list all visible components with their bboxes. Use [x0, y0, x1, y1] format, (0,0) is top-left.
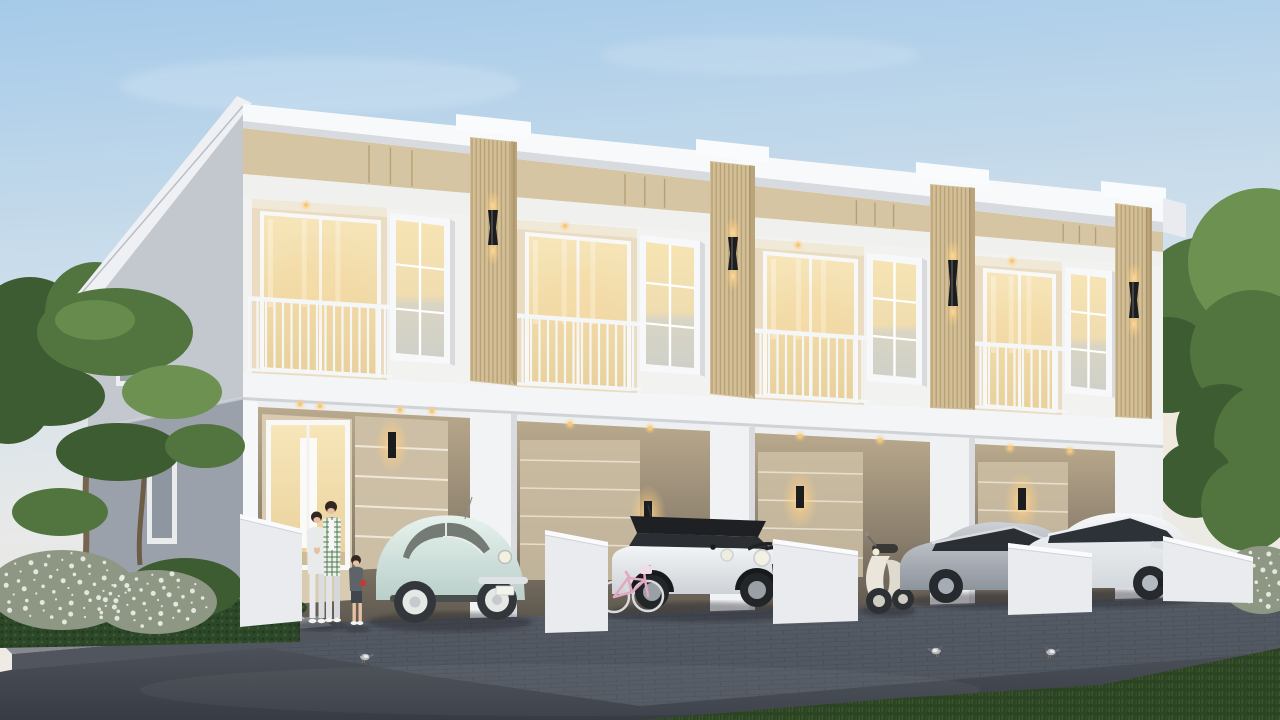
white-flower [1266, 604, 1271, 609]
white-flower [113, 598, 118, 603]
white-flower [1254, 580, 1258, 584]
unit-4-balcony [970, 256, 1067, 415]
downlight [294, 398, 306, 410]
window-frame-shadow [700, 241, 705, 377]
white-flower [181, 595, 185, 599]
white-flower [89, 573, 91, 575]
white-flower [35, 592, 37, 594]
white-flower [124, 583, 129, 588]
white-flower [161, 605, 163, 607]
white-flower [1265, 577, 1267, 579]
white-flower [13, 593, 15, 595]
father-leg [326, 576, 332, 618]
wood-slat-pillar-2 [710, 161, 755, 399]
window-frame-shadow [450, 219, 455, 366]
mini-mirror [710, 544, 716, 550]
white-flower [23, 606, 28, 611]
boy-leg [359, 603, 362, 621]
white-flower [17, 579, 21, 583]
pigeon-wing [932, 649, 937, 652]
white-flower [70, 552, 72, 554]
white-flower [139, 588, 143, 592]
white-flower [1272, 569, 1277, 574]
pigeon-head [938, 646, 942, 650]
downlight [314, 400, 326, 412]
wood-slat-pillar-1 [470, 137, 517, 386]
white-flower [61, 578, 66, 583]
fence-wall-3 [773, 539, 858, 624]
white-flower [191, 608, 196, 613]
white-flower [73, 573, 77, 577]
roof-overhang-cap [1163, 198, 1186, 238]
white-flower [158, 621, 163, 626]
white-flower [1269, 561, 1273, 565]
white-flower [102, 590, 104, 592]
white-flower [194, 583, 196, 585]
white-flower [14, 563, 16, 565]
white-flower [7, 600, 11, 604]
white-flower [103, 561, 107, 565]
father-tee [329, 520, 334, 550]
white-flower [29, 615, 31, 617]
white-flower [102, 576, 107, 581]
interior-glow [252, 228, 387, 344]
townhouse-rendering [0, 0, 1280, 720]
white-flower [93, 583, 97, 587]
white-flower [162, 586, 166, 590]
white-flower [111, 584, 113, 586]
white-flower [140, 624, 144, 628]
downlight [559, 220, 571, 232]
fence-wall-2 [545, 530, 608, 633]
window-frame-shadow [922, 258, 927, 387]
white-flower [177, 609, 181, 613]
white-flower [29, 560, 34, 565]
white-flower [127, 588, 131, 592]
downlight [1064, 445, 1076, 457]
white-flower [5, 573, 9, 577]
downlight [394, 404, 406, 416]
white-flower [148, 617, 152, 621]
white-flower [88, 564, 92, 568]
white-flower [52, 590, 56, 594]
white-flower [84, 616, 86, 618]
white-flower [131, 611, 136, 616]
white-flower [103, 597, 108, 602]
cloud [600, 35, 920, 75]
cloud [120, 57, 520, 113]
downlight [644, 422, 656, 434]
vespa-mirror [865, 532, 869, 536]
white-flower [1258, 557, 1260, 559]
white-flower [132, 597, 136, 601]
white-flower [43, 609, 45, 611]
fence-wall-4 [1008, 543, 1092, 615]
white-flower [151, 591, 156, 596]
white-flower [201, 596, 205, 600]
white-flower [135, 577, 139, 581]
bike-basket [640, 566, 652, 574]
white-flower [69, 601, 74, 606]
mother-leg [319, 574, 325, 618]
white-flower [69, 564, 74, 569]
white-flower [159, 578, 164, 583]
white-flower [58, 607, 62, 611]
white-flower [177, 586, 179, 588]
pigeon-head [359, 652, 363, 656]
father-leg [334, 576, 340, 618]
boy-red-toy [360, 580, 366, 586]
unit-3-balcony [750, 239, 869, 405]
white-flower [133, 619, 135, 621]
pillar-shadow-edge [969, 187, 975, 410]
white-flower [1268, 584, 1270, 586]
white-flower [106, 569, 108, 571]
white-flower [1249, 551, 1253, 555]
white-flower [118, 595, 120, 597]
mini-headlight [754, 550, 770, 566]
beetle-bumper [478, 577, 528, 584]
boy-shorts [351, 591, 362, 603]
wood-slat-pillar-4 [1115, 203, 1152, 419]
white-flower [99, 616, 103, 620]
downlight [874, 434, 886, 446]
vespa-headlight [873, 549, 880, 556]
pillar-shadow-edge [511, 141, 517, 386]
white-flower [56, 569, 58, 571]
white-flower [191, 602, 193, 604]
porch-wall-sconce [388, 432, 396, 458]
boy-tshirt [349, 567, 363, 591]
white-flower [22, 586, 27, 591]
downlight [1006, 255, 1018, 267]
fence-wall-1 [240, 514, 302, 627]
downlight [794, 430, 806, 442]
white-flower [190, 589, 195, 594]
white-flower [71, 594, 73, 596]
white-flower [41, 585, 45, 589]
beetle-headlight [499, 551, 512, 564]
white-flower [83, 607, 85, 609]
boy-leg [353, 603, 356, 621]
white-flower [113, 584, 117, 588]
white-flower [145, 609, 147, 611]
beetle-mirror [450, 538, 455, 543]
carport-wall-sconce [796, 486, 804, 508]
white-flower [84, 590, 89, 595]
white-flower [1266, 592, 1271, 597]
white-flower [157, 599, 159, 601]
white-flower [1257, 589, 1259, 591]
unit-2-balcony [512, 220, 642, 393]
white-flower [167, 592, 172, 597]
downlight [792, 239, 804, 251]
white-flower [49, 575, 53, 579]
white-flower [88, 598, 92, 602]
wood-slat-pillar-3 [930, 184, 975, 410]
white-flower [173, 602, 178, 607]
beetle-license-plate [496, 586, 514, 595]
downlight [426, 405, 438, 417]
white-flower [68, 612, 73, 617]
white-flower [50, 615, 54, 619]
pigeon-wing [363, 655, 368, 658]
pigeon-head [1045, 647, 1049, 651]
pillar-shadow-edge [749, 165, 755, 399]
unit-1-balcony [247, 199, 392, 380]
white-flower [126, 604, 128, 606]
white-flower [105, 605, 107, 607]
pillar-shadow-edge [1146, 207, 1152, 419]
white-flower [100, 611, 104, 615]
pigeon-wing [1049, 650, 1054, 653]
white-flower [147, 583, 149, 585]
white-flower [97, 607, 101, 611]
white-flower [151, 574, 153, 576]
white-flower [109, 592, 113, 596]
white-flower [1260, 568, 1265, 573]
white-flower [1277, 599, 1279, 601]
white-flower [4, 583, 9, 588]
white-flower [62, 620, 67, 625]
white-flower [40, 600, 45, 605]
mother-leg [310, 574, 316, 618]
white-flower [120, 575, 125, 580]
white-flower [7, 608, 12, 613]
white-flower [61, 559, 63, 561]
white-flower [172, 617, 174, 619]
white-flower [96, 595, 101, 600]
white-flower [47, 554, 51, 558]
white-flower [186, 617, 190, 621]
white-flower [44, 563, 48, 567]
white-flower [176, 579, 180, 583]
white-flower [33, 579, 35, 581]
white-flower [158, 611, 163, 616]
white-flower [1266, 552, 1271, 557]
white-flower [170, 571, 175, 576]
interior-glow [517, 248, 637, 359]
downlight [564, 418, 576, 430]
white-flower [112, 605, 117, 610]
white-flower [20, 570, 22, 572]
downlight [300, 199, 312, 211]
white-flower [55, 598, 57, 600]
white-flower [205, 606, 207, 608]
white-flower [1259, 599, 1263, 603]
white-flower [115, 616, 120, 621]
white-flower [25, 599, 29, 603]
mini-headlight-far [721, 549, 733, 561]
white-flower [81, 556, 86, 561]
white-flower [117, 610, 121, 614]
white-flower [77, 580, 82, 585]
white-flower [142, 602, 146, 606]
white-flower [33, 569, 38, 574]
downlight [1004, 442, 1016, 454]
interior-glow [755, 266, 864, 373]
white-flower [67, 587, 69, 589]
carport-wall-sconce [1018, 488, 1026, 510]
white-flower [125, 592, 127, 594]
